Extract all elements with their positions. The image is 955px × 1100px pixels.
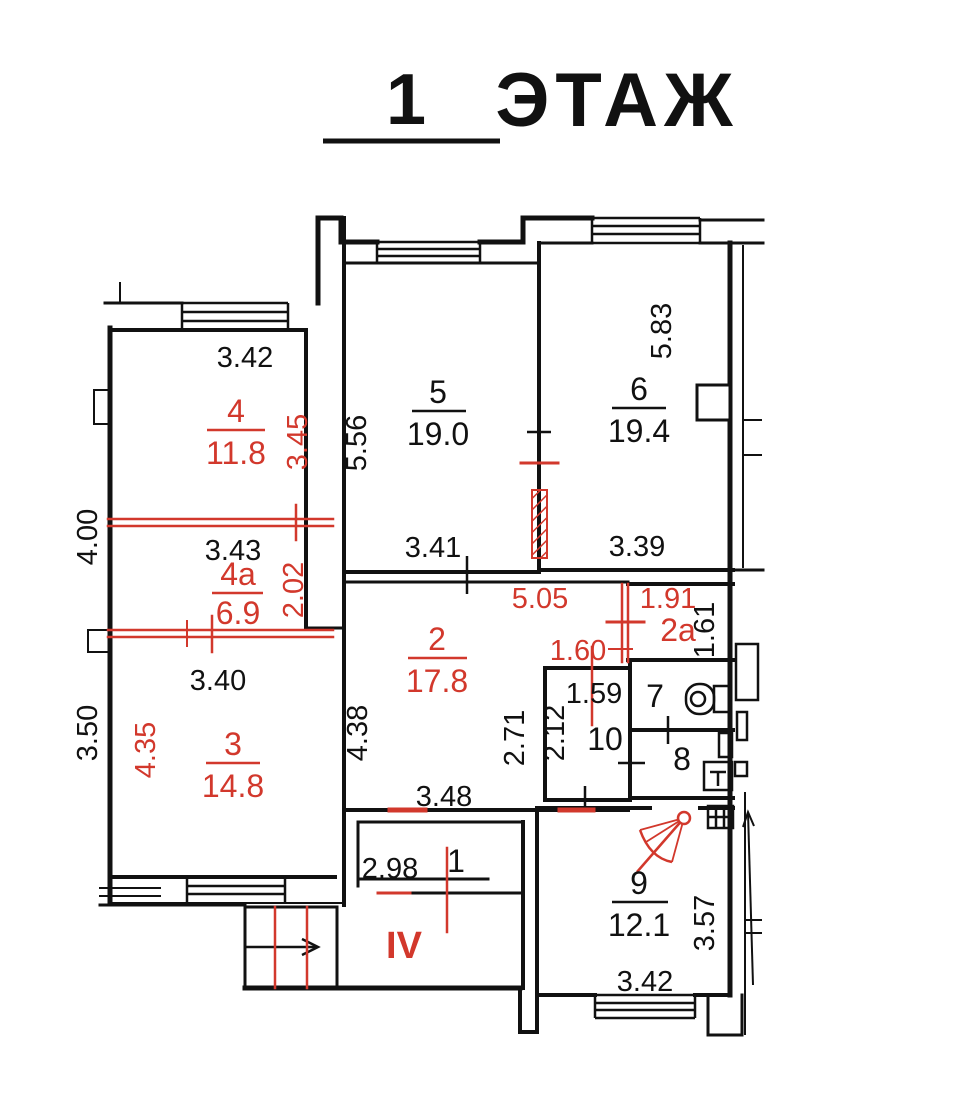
dim-room2-left: 4.38 [342, 705, 374, 761]
floor-plan-drawing: 1 ЭТАЖ [0, 0, 955, 1100]
dim-room4-right: 3.45 [282, 414, 314, 470]
room2-area: 17.8 [406, 663, 468, 699]
room3-number: 3 [224, 726, 242, 762]
floor-plan-page: 1 ЭТАЖ [0, 0, 955, 1100]
dim-room2-top: 5.05 [512, 583, 568, 615]
title-block: 1 ЭТАЖ [323, 58, 739, 143]
dim-left-lower: 3.50 [72, 705, 104, 761]
title-floor-word: ЭТАЖ [495, 58, 738, 143]
room5-number: 5 [429, 374, 447, 410]
dim-room6-bottom: 3.39 [609, 531, 665, 563]
window-room4-top [182, 303, 288, 330]
title-floor-number: 1 [386, 60, 426, 140]
room2-number: 2 [428, 621, 446, 657]
toilet-icon [686, 684, 730, 714]
dim-room4a-top: 3.43 [205, 535, 261, 567]
staircase [245, 907, 337, 988]
dim-room6-left: 5.83 [646, 303, 678, 359]
dim-room3-top: 3.40 [190, 665, 246, 697]
room6-number: 6 [630, 371, 648, 407]
dim-room1-width: 2.98 [362, 853, 418, 885]
room4a-area: 6.9 [216, 595, 260, 631]
room3-area: 14.8 [202, 768, 264, 804]
dim-room3-left: 4.35 [130, 722, 162, 778]
window-room6-top [592, 218, 700, 243]
room6-area: 19.4 [608, 413, 670, 449]
dim-room4a-right: 2.02 [278, 562, 310, 618]
balcony-arrow-line [748, 812, 753, 985]
vent-shaft-hatch [532, 490, 547, 558]
room10-number: 10 [587, 721, 623, 757]
room4-area: 11.8 [206, 435, 266, 471]
corridor-number: IV [386, 925, 423, 967]
room7-number: 7 [646, 678, 664, 714]
dim-room10-top: 1.59 [566, 678, 622, 710]
room6-pilaster [697, 385, 730, 420]
dim-room10-opening: 1.60 [550, 635, 606, 667]
dim-room9-right: 3.57 [689, 895, 721, 951]
dim-left-upper: 4.00 [72, 509, 104, 565]
room4-number: 4 [227, 393, 245, 429]
dim-room5-bottom: 3.41 [405, 532, 461, 564]
dim-room2-bottom: 3.48 [416, 781, 472, 813]
dim-room9-bottom: 3.42 [617, 966, 673, 998]
room1-number: 1 [447, 843, 465, 879]
room8-number: 8 [673, 741, 691, 777]
room5-area: 19.0 [407, 416, 469, 452]
dim-room2a-top: 1.91 [640, 583, 696, 615]
room9-area: 12.1 [608, 907, 670, 943]
dim-room2-right: 2.71 [499, 710, 531, 766]
balcony-upper [743, 245, 762, 568]
room9-number: 9 [630, 865, 648, 901]
dim-room10-left: 2.12 [539, 705, 571, 761]
balcony-lower [743, 792, 762, 1035]
riser-boxes [735, 644, 758, 776]
door-swing-icon [637, 812, 690, 872]
window-room3-bottom [187, 877, 285, 903]
window-room9-bottom [595, 995, 695, 1018]
dim-room4-top: 3.42 [217, 342, 273, 374]
window-room5-top [377, 242, 480, 263]
dim-room5-left: 5.56 [341, 415, 373, 471]
